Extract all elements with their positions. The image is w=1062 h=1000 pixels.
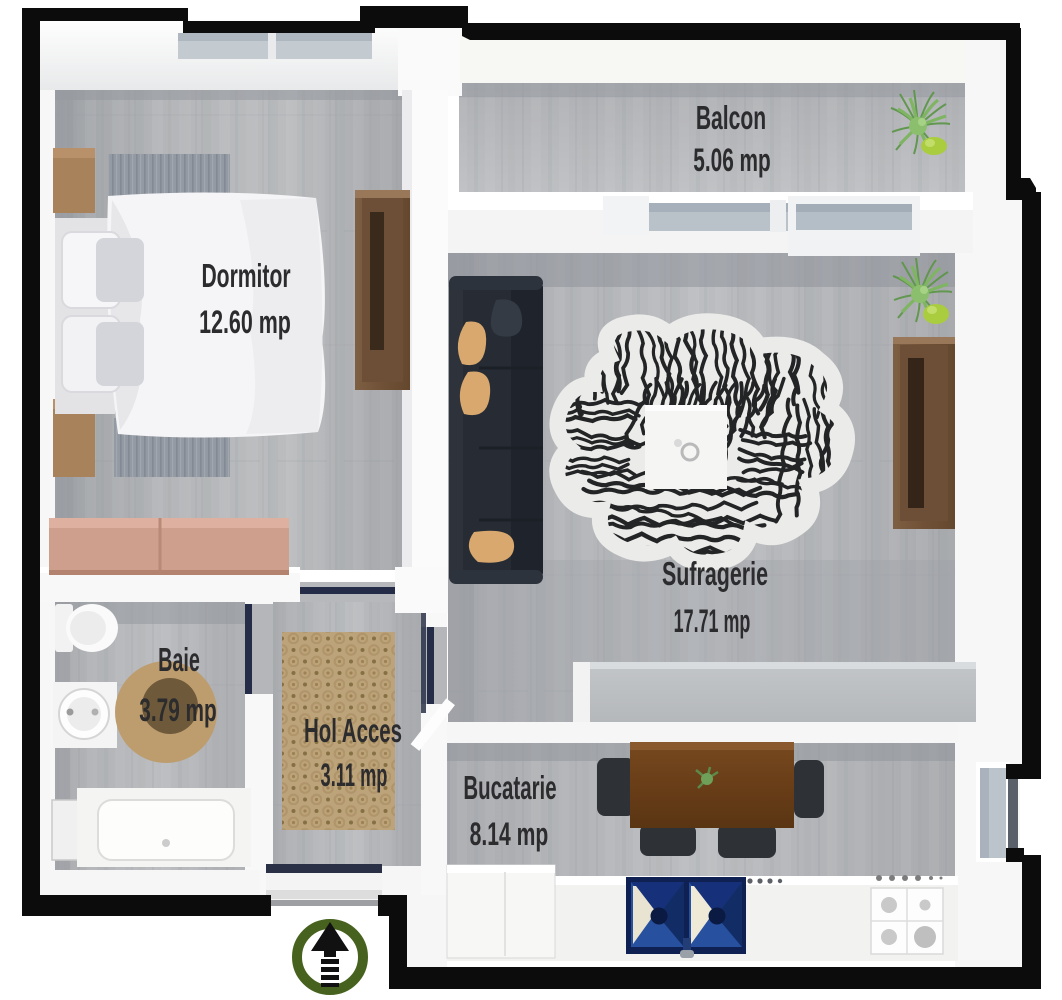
svg-text:12.60 mp: 12.60 mp [199,304,291,340]
svg-text:3.79 mp: 3.79 mp [139,693,216,729]
svg-text:Bucatarie: Bucatarie [463,769,556,806]
svg-text:17.71 mp: 17.71 mp [674,605,751,640]
svg-text:Sufragerie: Sufragerie [662,555,768,592]
svg-text:3.11 mp: 3.11 mp [321,757,388,794]
svg-text:Dormitor: Dormitor [201,257,290,294]
svg-text:8.14 mp: 8.14 mp [470,815,549,852]
svg-text:5.06 mp: 5.06 mp [693,143,770,179]
svg-text:Hol Acces: Hol Acces [304,712,402,749]
svg-text:Balcon: Balcon [696,99,766,136]
svg-text:Baie: Baie [158,641,200,679]
